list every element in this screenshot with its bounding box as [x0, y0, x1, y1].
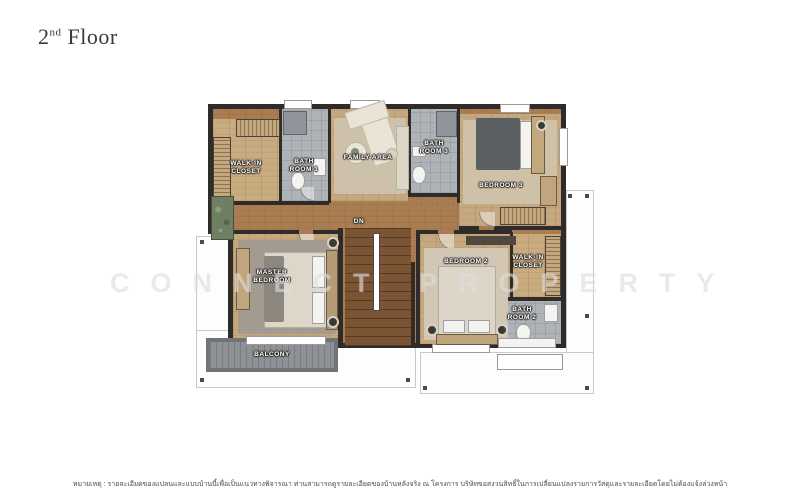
pillow-bedroom2-1: [443, 320, 465, 333]
bathtub-bath2: [498, 338, 556, 348]
planter-bench-bath2: [497, 354, 563, 370]
wardrobe-closet2: [545, 236, 561, 296]
post-dot-4: [585, 386, 589, 390]
wall-bedroom2-top-a: [416, 230, 438, 234]
floor-plan-page: 2nd Floor: [0, 0, 800, 500]
post-dot-3: [423, 386, 427, 390]
wall-master-stairs: [338, 228, 343, 348]
bed-bedroom3: [476, 118, 520, 170]
tv-console-bedroom2: [466, 236, 516, 245]
pillow-bedroom2-2: [468, 320, 490, 333]
stair-rail: [373, 233, 380, 311]
post-dot-5: [568, 194, 572, 198]
wardrobe-closet1-left: [213, 137, 231, 201]
window-top-bath1: [284, 100, 312, 109]
post-dot-7: [200, 240, 204, 244]
label-family-area: FAMILY AREA: [344, 154, 393, 162]
toilet-bath1: [291, 172, 305, 190]
sink-bath2: [544, 304, 558, 322]
label-master-bedroom: MASTER BEDROOM: [253, 269, 290, 285]
blanket-master: [264, 256, 284, 322]
nightstand-lamp-bedroom2-1: [426, 324, 438, 336]
floor-word: Floor: [68, 24, 118, 49]
wall-bath3-bedroom3: [457, 109, 460, 203]
label-bedroom-3: BEDROOM 3: [479, 182, 523, 190]
label-stairs-dn: DN: [354, 218, 364, 226]
nightstand-lamp-bedroom2-2: [496, 324, 508, 336]
shower-bath3: [436, 111, 457, 137]
wall-master-top-b: [313, 230, 341, 234]
planter-left: [211, 196, 234, 240]
wall-bedroom2-top-b: [454, 230, 512, 234]
window-bottom-bedroom2: [432, 344, 490, 353]
wardrobe-closet1-top: [236, 119, 280, 137]
post-dot-6: [585, 194, 589, 198]
post-dot-8: [585, 314, 589, 318]
nightstand-lamp-master-2: [327, 316, 339, 328]
label-walk-in-closet-1: WALK-IN CLOSET: [230, 160, 261, 176]
label-bath-room-2: BATH ROOM 2: [508, 306, 537, 322]
wall-bath1-family: [328, 109, 331, 203]
post-dot-1: [200, 378, 204, 382]
label-balcony: BALCONY: [254, 351, 290, 359]
label-bath-room-3: BATH ROOM 3: [420, 140, 449, 156]
label-walk-in-closet-2: WALK-IN CLOSET: [512, 254, 543, 270]
wardrobe-bedroom3: [500, 207, 546, 225]
wall-stairs-right: [411, 262, 415, 348]
label-bath-room-1: BATH ROOM 1: [290, 158, 319, 174]
toilet-bath3: [412, 166, 426, 184]
wall-bath3-corridor: [408, 193, 458, 197]
lamp-bedroom3: [536, 120, 547, 131]
post-dot-2: [406, 378, 410, 382]
shower-bath1: [283, 111, 307, 135]
wall-master-top-a: [233, 230, 299, 234]
label-bedroom-2: BEDROOM 2: [444, 258, 488, 266]
floor-number: 2: [38, 24, 50, 49]
wall-bedroom2-left: [416, 232, 420, 344]
floor-ordinal: nd: [50, 27, 62, 39]
nightstand-lamp-master-1: [327, 237, 339, 249]
pillow-master-2: [312, 292, 325, 324]
tv-console-master: [236, 248, 250, 310]
page-title: 2nd Floor: [38, 24, 118, 50]
dresser-bedroom3: [540, 176, 557, 206]
window-right-bedroom3: [559, 128, 568, 166]
disclaimer-text: หมายเหตุ : รายละเอียดของแปลนและแบบบ้านนี…: [0, 479, 800, 490]
sliding-door-balcony: [246, 336, 326, 345]
headboard-bedroom2: [436, 334, 498, 345]
pillow-master-1: [312, 256, 325, 288]
desk-family: [396, 126, 409, 190]
window-top-bedroom3: [500, 104, 530, 113]
